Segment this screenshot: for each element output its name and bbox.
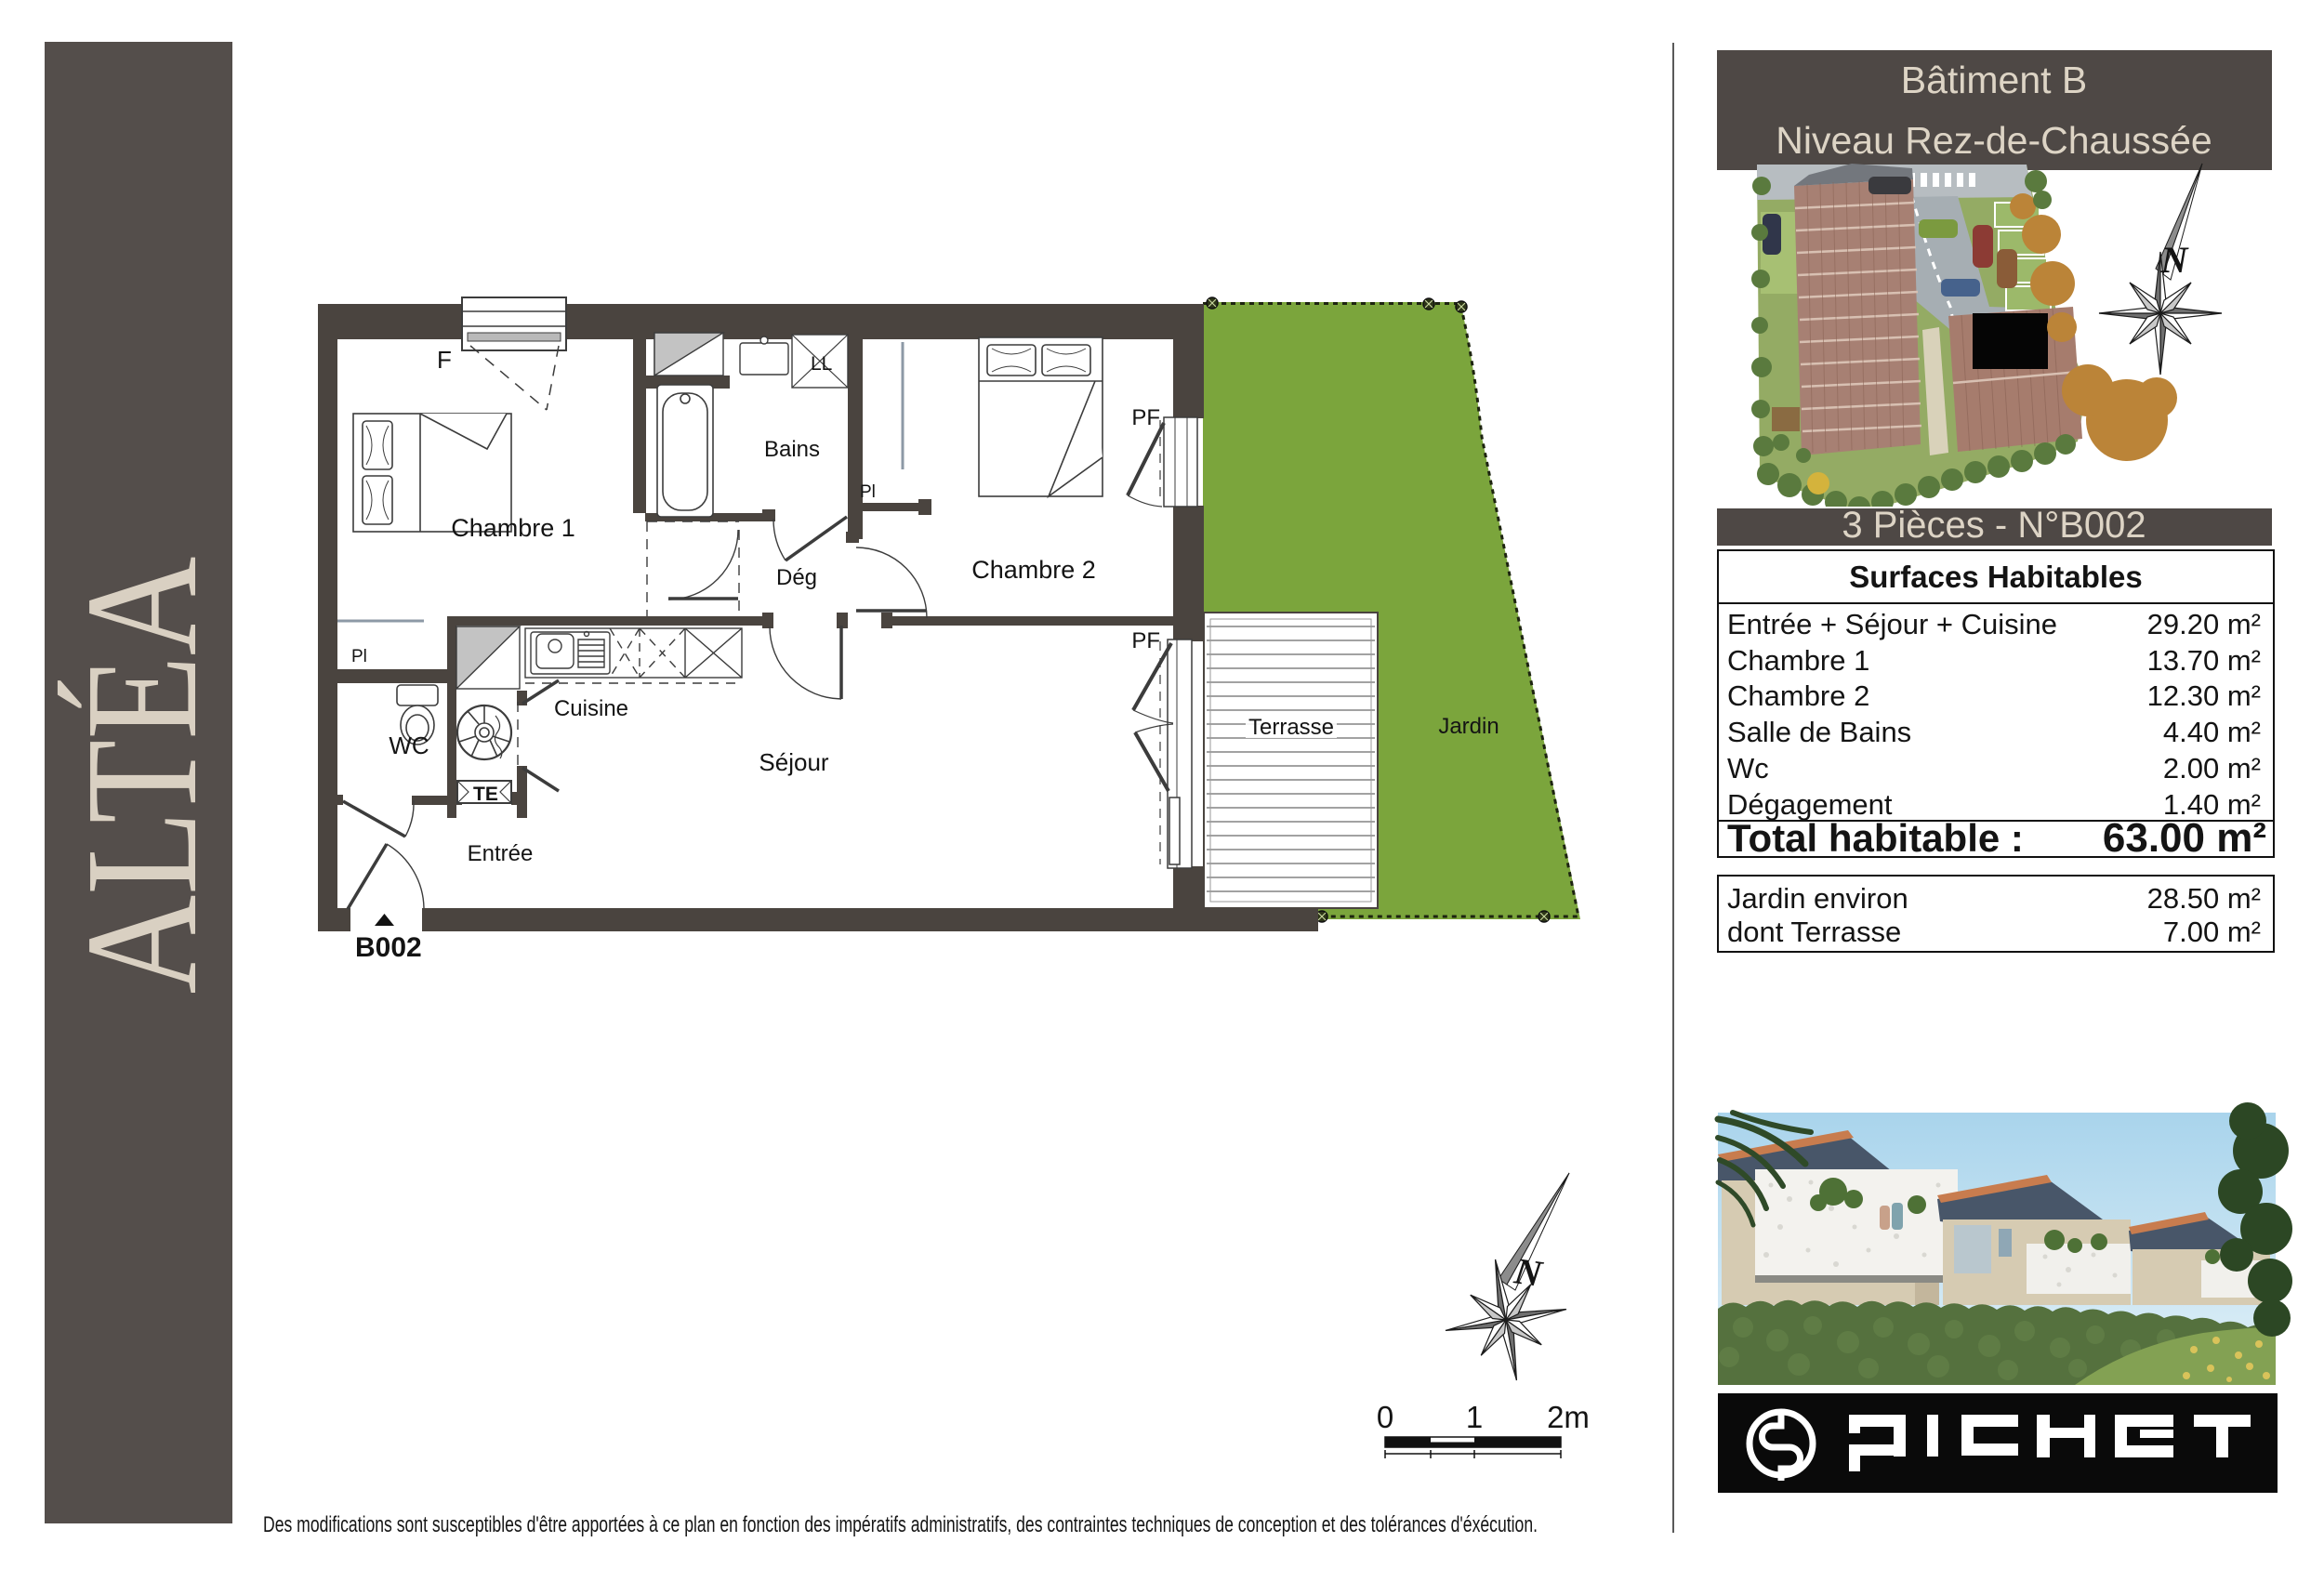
svg-text:0: 0 bbox=[1377, 1400, 1393, 1434]
svg-text:Jardin: Jardin bbox=[1438, 714, 1499, 739]
svg-text:LL: LL bbox=[811, 353, 832, 375]
svg-text:Des modifications sont suscept: Des modifications sont susceptibles d'êt… bbox=[263, 1512, 1538, 1537]
svg-text:Entrée + Séjour + Cuisine: Entrée + Séjour + Cuisine bbox=[1727, 608, 2057, 640]
svg-text:TE: TE bbox=[473, 784, 498, 805]
svg-text:Bâtiment B: Bâtiment B bbox=[1901, 59, 2088, 101]
svg-text:B002: B002 bbox=[355, 932, 422, 963]
svg-text:Pl: Pl bbox=[351, 647, 367, 666]
svg-text:Dég: Dég bbox=[776, 565, 817, 590]
svg-text:Pl: Pl bbox=[860, 482, 876, 502]
svg-text:WC: WC bbox=[389, 732, 429, 759]
svg-text:PF: PF bbox=[1131, 628, 1160, 653]
svg-text:dont Terrasse: dont Terrasse bbox=[1727, 916, 1901, 948]
svg-text:N: N bbox=[2160, 239, 2190, 281]
svg-text:Salle de Bains: Salle de Bains bbox=[1727, 716, 1911, 748]
svg-text:28.50 m²: 28.50 m² bbox=[2147, 882, 2261, 915]
svg-text:Surfaces Habitables: Surfaces Habitables bbox=[1849, 560, 2142, 594]
svg-text:Séjour: Séjour bbox=[759, 748, 828, 776]
svg-text:4.40 m²: 4.40 m² bbox=[2163, 716, 2261, 748]
svg-text:Chambre 1: Chambre 1 bbox=[1727, 644, 1869, 677]
svg-text:Jardin environ: Jardin environ bbox=[1727, 882, 1908, 915]
svg-text:Chambre 2: Chambre 2 bbox=[1727, 679, 1869, 712]
svg-text:3 Pièces - N°B002: 3 Pièces - N°B002 bbox=[1842, 505, 2146, 546]
svg-text:Total habitable :: Total habitable : bbox=[1727, 816, 2024, 860]
svg-text:Niveau Rez-de-Chaussée: Niveau Rez-de-Chaussée bbox=[1776, 119, 2212, 162]
svg-text:1: 1 bbox=[1466, 1400, 1483, 1434]
svg-text:Chambre 1: Chambre 1 bbox=[451, 514, 575, 542]
svg-text:Bains: Bains bbox=[764, 437, 820, 462]
svg-text:12.30 m²: 12.30 m² bbox=[2147, 679, 2261, 712]
svg-text:29.20 m²: 29.20 m² bbox=[2147, 608, 2261, 640]
svg-text:7.00 m²: 7.00 m² bbox=[2163, 916, 2261, 948]
svg-text:Entrée: Entrée bbox=[468, 841, 534, 866]
svg-text:Chambre 2: Chambre 2 bbox=[971, 556, 1096, 584]
svg-text:2m: 2m bbox=[1547, 1400, 1590, 1434]
svg-text:2.00 m²: 2.00 m² bbox=[2163, 752, 2261, 784]
svg-text:Terrasse: Terrasse bbox=[1248, 715, 1334, 740]
svg-text:63.00 m²: 63.00 m² bbox=[2103, 815, 2266, 861]
svg-text:F: F bbox=[437, 346, 452, 374]
svg-text:13.70 m²: 13.70 m² bbox=[2147, 644, 2261, 677]
svg-text:PF: PF bbox=[1131, 405, 1160, 430]
svg-text:Cuisine: Cuisine bbox=[554, 696, 628, 721]
svg-text:Wc: Wc bbox=[1727, 752, 1769, 784]
svg-text:ALTÉA: ALTÉA bbox=[52, 557, 230, 995]
